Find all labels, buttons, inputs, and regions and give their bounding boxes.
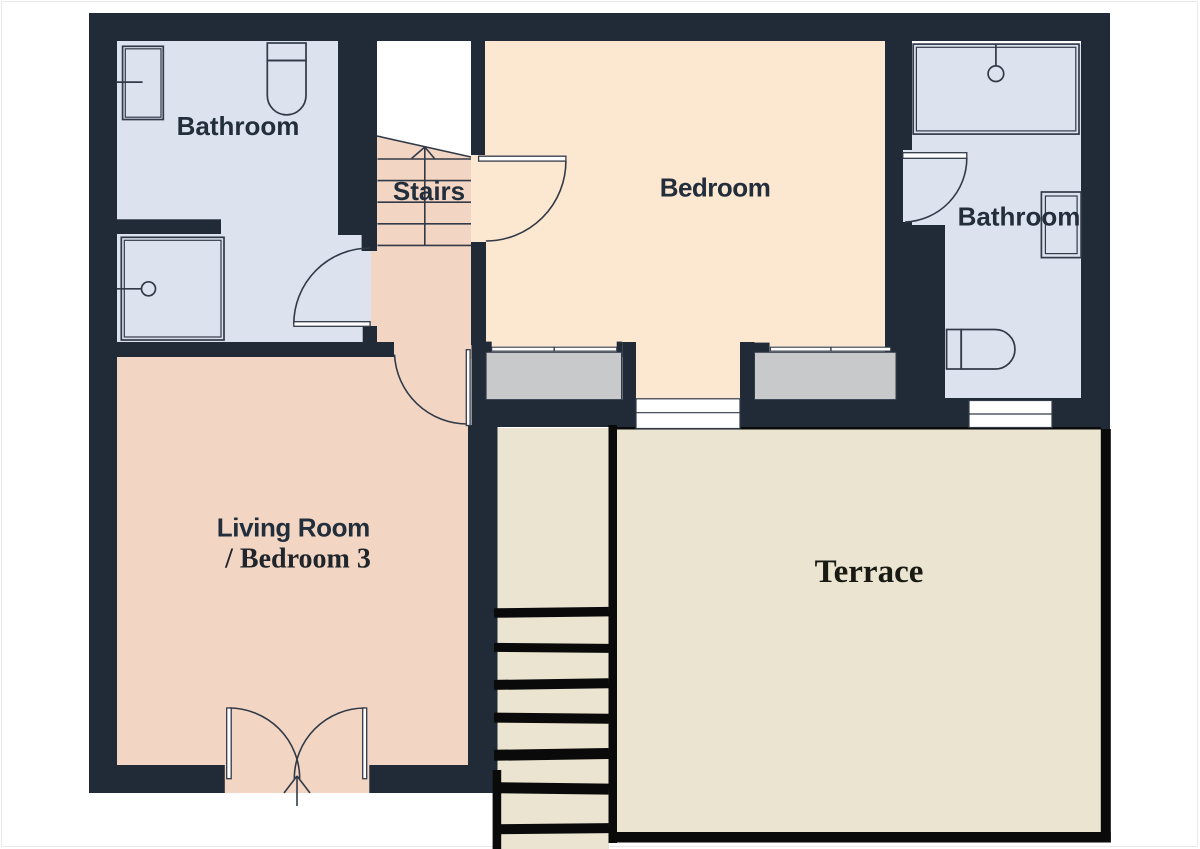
svg-text:Bathroom: Bathroom <box>958 202 1081 232</box>
svg-text:Terrace: Terrace <box>815 554 924 590</box>
svg-text:Bathroom: Bathroom <box>177 111 300 141</box>
svg-text:Living Room: Living Room <box>217 513 370 543</box>
svg-text:Bedroom: Bedroom <box>660 173 771 203</box>
svg-text:/ Bedroom 3: / Bedroom 3 <box>224 544 371 575</box>
svg-text:Stairs: Stairs <box>393 176 465 206</box>
